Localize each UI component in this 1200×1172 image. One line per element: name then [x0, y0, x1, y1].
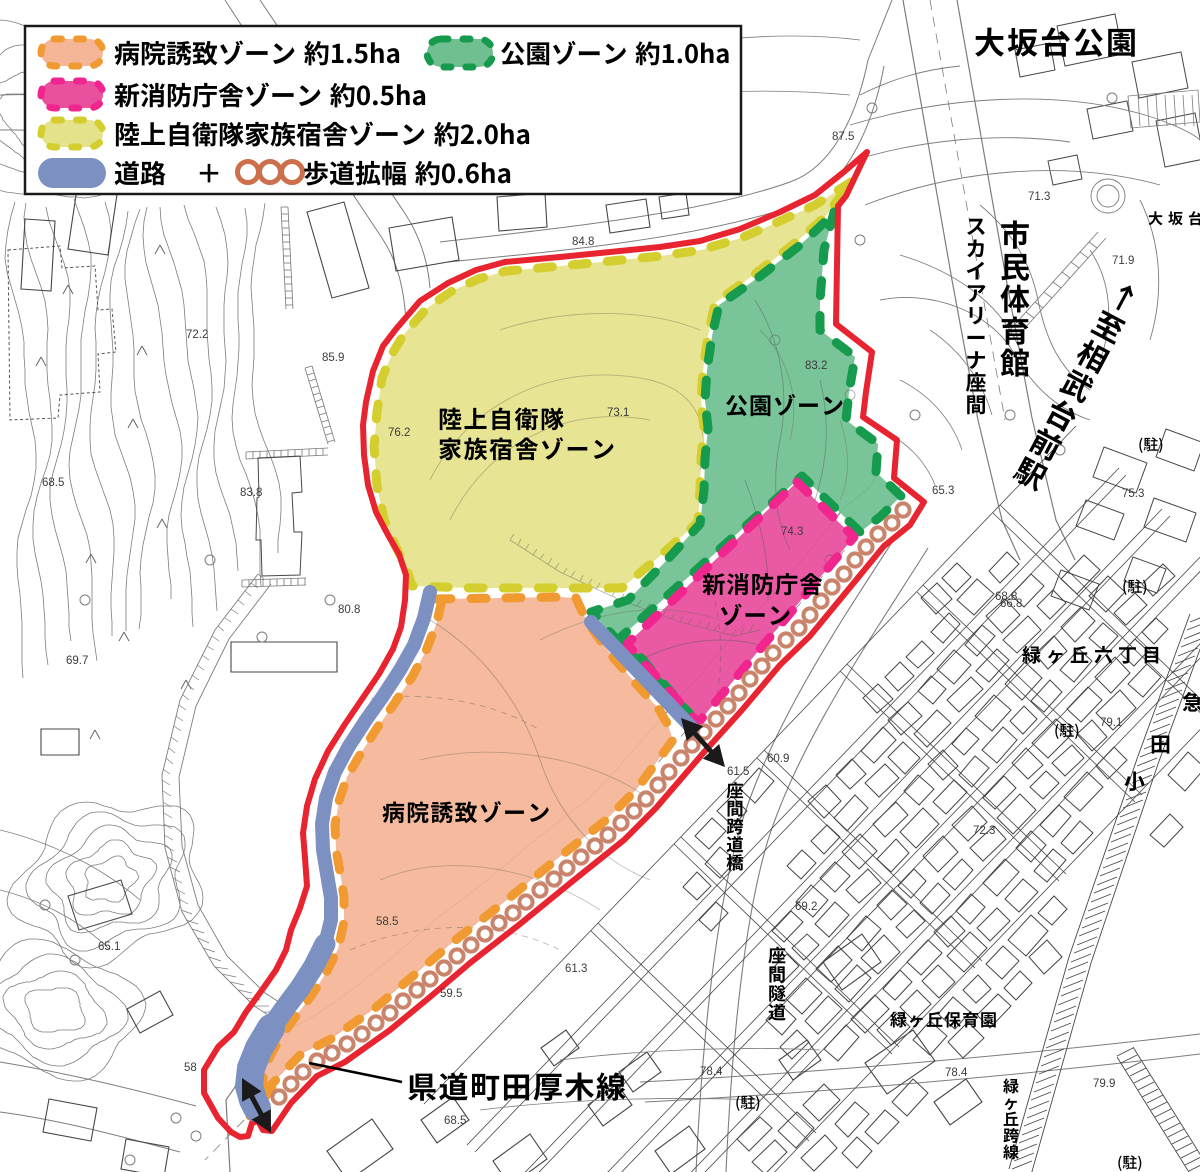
svg-text:69.7: 69.7 [66, 655, 88, 667]
svg-text:75.3: 75.3 [1122, 488, 1144, 500]
svg-text:65.1: 65.1 [98, 941, 120, 953]
svg-text:72.2: 72.2 [186, 329, 208, 341]
svg-text:79.1: 79.1 [1100, 717, 1122, 729]
svg-text:71.9: 71.9 [1112, 255, 1134, 267]
svg-text:68.5: 68.5 [444, 1115, 466, 1127]
svg-text:80.8: 80.8 [338, 604, 360, 616]
svg-text:78.4: 78.4 [945, 1067, 968, 1079]
svg-text:71.3: 71.3 [1028, 191, 1050, 203]
svg-text:65.3: 65.3 [932, 485, 954, 497]
svg-text:83.8: 83.8 [240, 487, 262, 499]
svg-text:87.5: 87.5 [832, 131, 854, 143]
svg-text:84.8: 84.8 [572, 236, 594, 248]
svg-text:61.5: 61.5 [727, 766, 749, 778]
svg-text:78.4: 78.4 [700, 1066, 723, 1078]
svg-text:69.2: 69.2 [795, 901, 817, 913]
svg-text:59.5: 59.5 [440, 988, 462, 1000]
svg-text:73.1: 73.1 [607, 407, 629, 419]
svg-text:60.9: 60.9 [767, 753, 789, 765]
svg-text:58: 58 [184, 1062, 197, 1074]
svg-text:76.2: 76.2 [388, 427, 410, 439]
svg-text:72.3: 72.3 [973, 825, 995, 837]
svg-text:61.3: 61.3 [565, 963, 587, 975]
svg-text:85.9: 85.9 [322, 352, 344, 364]
svg-text:66.8: 66.8 [1000, 598, 1022, 610]
svg-text:83.2: 83.2 [805, 360, 827, 372]
svg-text:68.5: 68.5 [42, 477, 64, 489]
svg-text:58.5: 58.5 [376, 916, 398, 928]
svg-text:74.3: 74.3 [781, 526, 803, 538]
svg-text:79.9: 79.9 [1093, 1078, 1115, 1090]
